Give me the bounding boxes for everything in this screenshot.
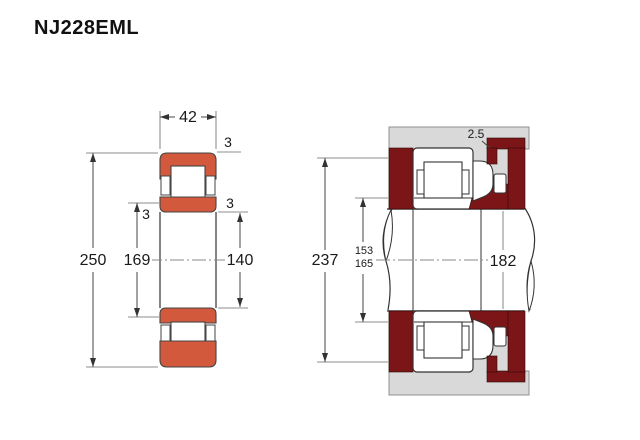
dim-width: 42 (179, 109, 197, 126)
dim-bore-diameter: 140 (227, 252, 254, 269)
dim-chamfer-left: 3 (142, 206, 150, 222)
housing-shoulder-bottom (389, 311, 413, 372)
dim-outer-diameter: 250 (80, 252, 107, 269)
cover-bottom-bar (487, 371, 525, 382)
dim-shaft-diameter: 182 (490, 253, 517, 270)
roller-top-right-view (424, 162, 462, 198)
housing-shoulder-top (389, 148, 413, 209)
dim-chamfer-outer: 3 (224, 134, 232, 150)
labyrinth-nub-top (494, 174, 506, 193)
cage-top-left-right-view (417, 170, 424, 194)
bearing-drawing: 42 3 3 3 250 169 140 (0, 0, 640, 440)
cover-top-vertical-bar (508, 148, 525, 209)
cage-bottom-left-right-view (417, 326, 424, 350)
cover-top-tab (487, 148, 497, 164)
dim-recess: 2.5 (468, 127, 485, 141)
labyrinth-nub-bottom (494, 327, 506, 346)
cover-bottom-vertical-bar (508, 311, 525, 372)
dim-housing-abutment: 237 (312, 252, 339, 269)
cover-top-bar (487, 138, 525, 149)
dim-chamfer-right: 3 (226, 195, 234, 211)
cover-bottom-tab (487, 356, 497, 372)
outer-ring-bottom (160, 341, 216, 367)
cage-top-right-right-view (462, 170, 469, 194)
cage-bottom-right-right-view (462, 326, 469, 350)
roller-bottom-right-view (424, 322, 462, 358)
roller-top (171, 166, 205, 198)
left-view-cross-section: 42 3 3 3 250 169 140 (78, 109, 255, 367)
dim-shaft-abutment-max: 165 (355, 258, 373, 270)
inner-ring-bottom (160, 308, 216, 323)
cage-top-left (161, 176, 170, 195)
dim-shaft-abutment-min: 153 (355, 245, 373, 257)
inner-ring-top (160, 197, 216, 212)
page-title: NJ228EML (34, 17, 139, 40)
dim-raceway-diameter: 169 (124, 252, 151, 269)
right-view-mounted: 237 153 165 182 2.5 (310, 127, 541, 395)
drawing-canvas: NJ228EML (0, 0, 640, 440)
cage-top-right (206, 176, 215, 195)
